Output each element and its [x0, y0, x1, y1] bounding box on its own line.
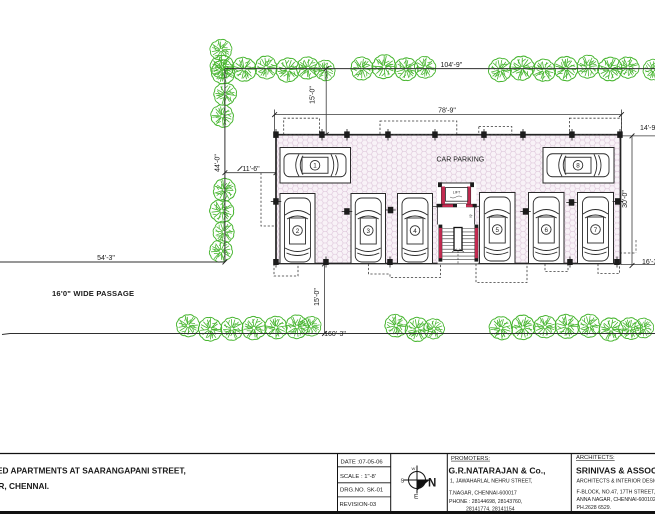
- svg-text:14'-9": 14'-9": [640, 125, 655, 132]
- svg-text:6: 6: [544, 227, 548, 234]
- svg-text:up: up: [469, 214, 473, 218]
- svg-text:4: 4: [413, 228, 417, 235]
- svg-text:78'-9": 78'-9": [438, 107, 456, 114]
- svg-text:SRINIVAS & ASSOCIATES: SRINIVAS & ASSOCIATES: [576, 465, 655, 475]
- svg-text:7: 7: [594, 227, 598, 234]
- svg-text:16'-3": 16'-3": [642, 259, 655, 266]
- svg-text:2: 2: [296, 228, 300, 235]
- svg-text:SCALE : 1"-8': SCALE : 1"-8': [340, 474, 376, 480]
- svg-text:15'-0": 15'-0": [314, 288, 321, 306]
- svg-text:PROPOSED APARTMENTS AT SAARANG: PROPOSED APARTMENTS AT SAARANGAPANI STRE…: [0, 466, 186, 476]
- svg-text:REVISION-03: REVISION-03: [340, 502, 377, 508]
- svg-text:11'-6": 11'-6": [242, 166, 260, 173]
- svg-text:S: S: [401, 479, 405, 485]
- svg-text:160'-3": 160'-3": [324, 331, 346, 338]
- svg-text:28141774, 28141154: 28141774, 28141154: [466, 506, 515, 512]
- svg-text:E: E: [414, 494, 419, 501]
- svg-text:104'-9": 104'-9": [441, 62, 463, 69]
- svg-text:30'-0": 30'-0": [622, 190, 629, 208]
- svg-text:DATE :07-05-06: DATE :07-05-06: [341, 459, 384, 465]
- svg-text:G.R.NATARAJAN & Co.,: G.R.NATARAJAN & Co.,: [449, 465, 546, 475]
- svg-text:DRG.NO. SK-01: DRG.NO. SK-01: [340, 488, 383, 494]
- svg-text:PROMOTERS:: PROMOTERS:: [451, 456, 490, 462]
- svg-text:44'-0": 44'-0": [214, 154, 221, 172]
- svg-text:1: 1: [313, 163, 317, 170]
- svg-text:15'-0": 15'-0": [310, 86, 317, 104]
- svg-text:PH.2628 6529.: PH.2628 6529.: [577, 505, 612, 511]
- svg-text:ARCHITECTS:: ARCHITECTS:: [576, 455, 615, 461]
- svg-text:CAR PARKING: CAR PARKING: [437, 157, 485, 164]
- svg-text:8: 8: [576, 163, 580, 170]
- svg-text:T.NAGAR, CHENNAI.: T.NAGAR, CHENNAI.: [0, 481, 49, 491]
- svg-text:16'0" WIDE PASSAGE: 16'0" WIDE PASSAGE: [52, 289, 134, 298]
- svg-text:1, JAWAHARLAL NEHRU STREET,: 1, JAWAHARLAL NEHRU STREET,: [450, 479, 532, 485]
- svg-text:54'-3": 54'-3": [97, 255, 115, 262]
- svg-text:3: 3: [366, 228, 370, 235]
- svg-text:5: 5: [495, 227, 499, 234]
- svg-text:ANNA NAGAR, CHENNAI-600102.: ANNA NAGAR, CHENNAI-600102.: [577, 497, 655, 503]
- svg-text:PHONE : 28144698, 28143760,: PHONE : 28144698, 28143760,: [449, 499, 522, 505]
- svg-text:F-BLOCK, NO.47, 17TH STREET,: F-BLOCK, NO.47, 17TH STREET,: [577, 489, 655, 495]
- svg-text:W: W: [412, 466, 416, 471]
- svg-text:LIFT: LIFT: [453, 191, 461, 195]
- svg-text:T.NAGAR, CHENNAI-600017: T.NAGAR, CHENNAI-600017: [449, 491, 517, 497]
- svg-text:ARCHITECTS & INTERIOR DESIGNER: ARCHITECTS & INTERIOR DESIGNERS: [577, 479, 655, 485]
- svg-text:N: N: [428, 478, 436, 490]
